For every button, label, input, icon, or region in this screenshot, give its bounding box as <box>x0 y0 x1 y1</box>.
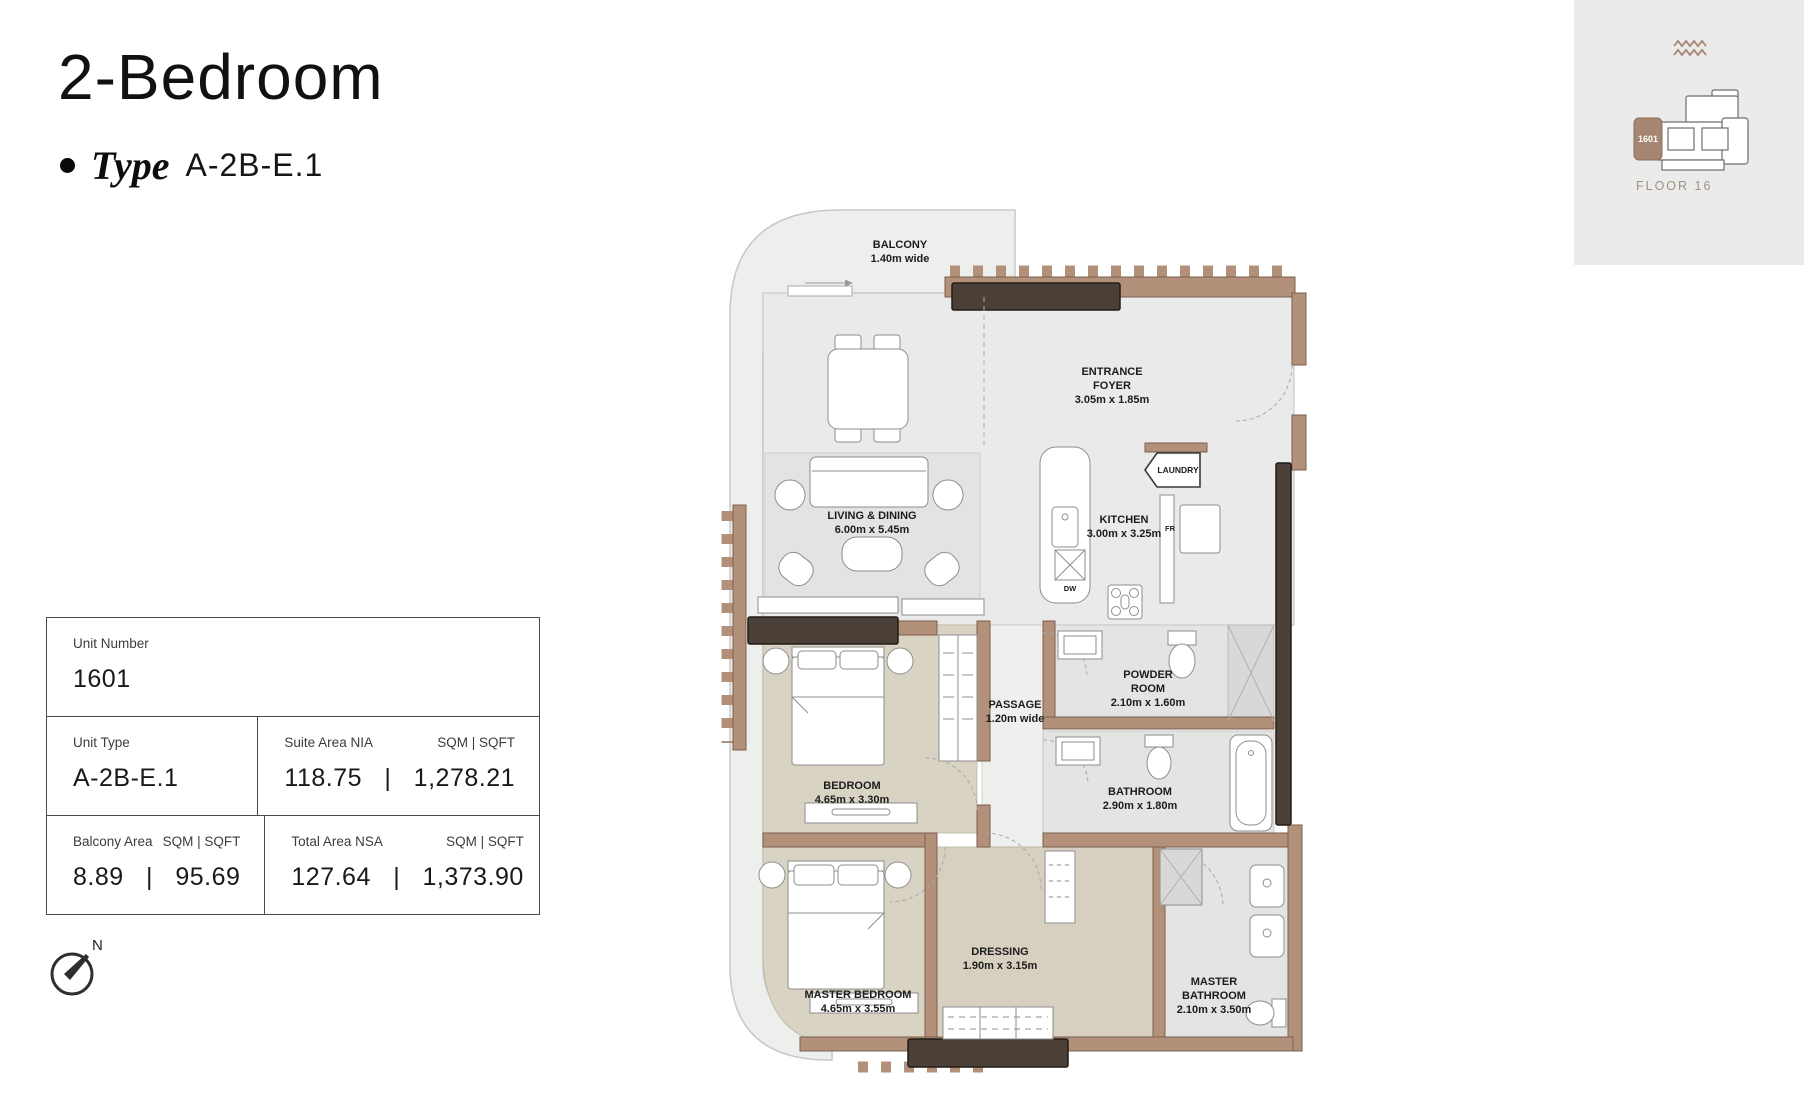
table-row-type-suite: Unit Type A-2B-E.1 Suite Area NIA SQM | … <box>47 717 539 816</box>
label-master-bedroom: MASTER BEDROOM <box>805 989 912 1001</box>
label-entrance-2: FOYER <box>1093 380 1131 392</box>
label-powder-1: POWDER <box>1123 669 1173 681</box>
table-row-balcony-total: Balcony Area SQM | SQFT 8.89 | 95.69 Tot… <box>47 816 539 914</box>
type-value: A-2B-E.1 <box>185 147 323 184</box>
label-powder-2: ROOM <box>1131 683 1165 695</box>
floor-passage <box>982 625 1043 847</box>
label-fridge: FR <box>1165 524 1176 533</box>
unit-info-table: Unit Number 1601 Unit Type A-2B-E.1 Suit… <box>46 617 540 915</box>
unit-number-label: Unit Number <box>73 636 149 651</box>
label-living: LIVING & DINING <box>827 510 916 522</box>
label-entrance-dims: 3.05m x 1.85m <box>1075 394 1150 406</box>
label-bedroom-dims: 4.65m x 3.30m <box>815 794 890 806</box>
label-master-bedroom-dims: 4.65m x 3.55m <box>821 1003 896 1015</box>
north-compass-icon: N <box>34 926 134 1026</box>
type-label: Type <box>91 142 169 189</box>
label-passage: PASSAGE <box>989 699 1042 711</box>
locator-floor-label: FLOOR 16 <box>1636 179 1712 193</box>
bullet-icon <box>60 158 75 173</box>
label-entrance-1: ENTRANCE <box>1081 366 1142 378</box>
label-kitchen: KITCHEN <box>1100 514 1149 526</box>
label-master-bath-2: BATHROOM <box>1182 990 1246 1002</box>
label-balcony: BALCONY <box>873 239 928 251</box>
label-bathroom: BATHROOM <box>1108 786 1172 798</box>
label-laundry: LAUNDRY <box>1157 465 1199 475</box>
label-balcony-dims: 1.40m wide <box>871 253 930 265</box>
total-area-label: Total Area NSA <box>291 834 383 849</box>
table-row-unit-number: Unit Number 1601 <box>47 618 539 717</box>
floor-locator: 1601 FLOOR 16 <box>1574 0 1804 265</box>
suite-area-label: Suite Area NIA <box>284 735 373 750</box>
suite-area-value: 118.75 | 1,278.21 <box>284 764 515 793</box>
label-living-dims: 6.00m x 5.45m <box>835 524 910 536</box>
balcony-area-value: 8.89 | 95.69 <box>73 863 240 892</box>
label-master-bath-dims: 2.10m x 3.50m <box>1177 1004 1252 1016</box>
label-bedroom: BEDROOM <box>823 780 880 792</box>
unit-number-value: 1601 <box>73 665 515 694</box>
unit-type-label: Unit Type <box>73 735 130 750</box>
locator-unit-number: 1601 <box>1638 134 1658 144</box>
label-powder-dims: 2.10m x 1.60m <box>1111 697 1186 709</box>
north-label: N <box>92 937 103 954</box>
balcony-area-units: SQM | SQFT <box>163 834 241 849</box>
label-bathroom-dims: 2.90m x 1.80m <box>1103 800 1178 812</box>
suite-area-units: SQM | SQFT <box>437 735 515 750</box>
label-passage-dims: 1.20m wide <box>986 713 1045 725</box>
total-area-units: SQM | SQFT <box>446 834 524 849</box>
balcony-area-label: Balcony Area <box>73 834 153 849</box>
unit-type-header: Type A-2B-E.1 <box>60 142 323 189</box>
label-master-bath-1: MASTER <box>1191 976 1238 988</box>
unit-type-value: A-2B-E.1 <box>73 764 233 793</box>
label-kitchen-dims: 3.00m x 3.25m <box>1087 528 1162 540</box>
label-dressing-dims: 1.90m x 3.15m <box>963 960 1038 972</box>
total-area-value: 127.64 | 1,373.90 <box>291 863 523 892</box>
floor-plan: BALCONY 1.40m wide ENTRANCE FOYER 3.05m … <box>600 165 1320 1085</box>
label-dressing: DRESSING <box>971 946 1028 958</box>
page-title: 2-Bedroom <box>58 40 384 114</box>
label-dishwasher: DW <box>1064 584 1077 593</box>
